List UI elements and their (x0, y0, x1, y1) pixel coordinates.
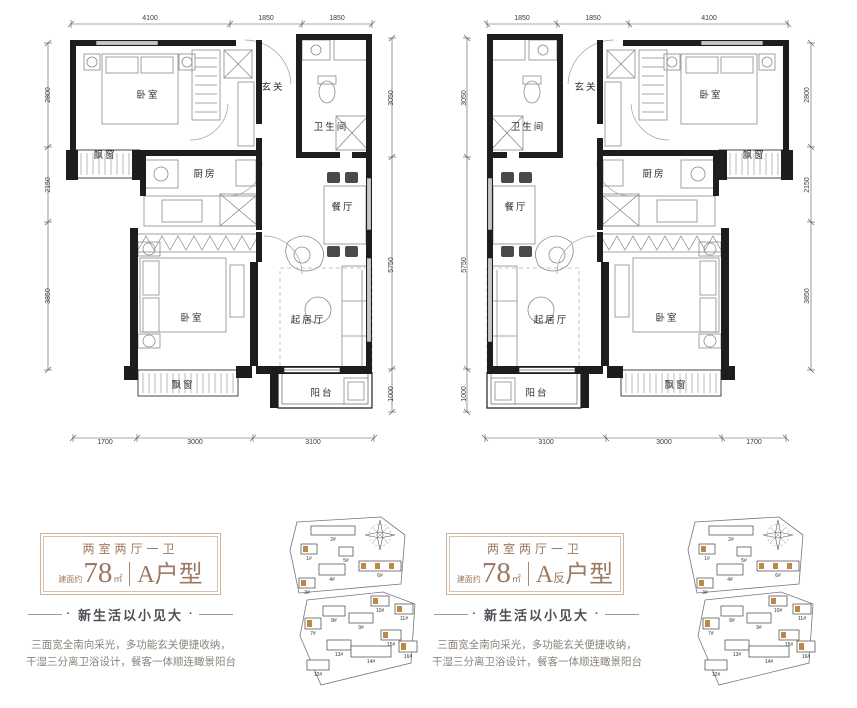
room-label: 卫生间 (511, 121, 546, 133)
highlighted-unit-marker (799, 643, 804, 650)
building-label: 1# (306, 556, 312, 562)
area-value: 78 (482, 559, 511, 588)
room-label: 卧室 (180, 312, 203, 324)
dim-label: 3050 (461, 90, 468, 106)
room-label: 玄关 (261, 81, 284, 93)
unit-area-row: 建面约 78 ㎡ A 户型 (58, 559, 202, 588)
building-label: 9# (358, 625, 364, 631)
highlighted-unit-marker (701, 546, 706, 552)
unit-card-a-frame: 两室两厅一卫 建面约 78 ㎡ A 户型 (43, 536, 218, 592)
wall (487, 34, 493, 158)
building-label: 13# (335, 652, 344, 658)
wall (70, 40, 76, 154)
room-label: 起居厅 (291, 315, 326, 326)
unit-card-a-flip: 两室两厅一卫 建面约 78 ㎡ A 反 户型 (446, 533, 624, 595)
building-label: 16# (404, 654, 413, 660)
building-label: 3# (304, 590, 310, 596)
wall (366, 34, 372, 158)
building: 7# (703, 618, 719, 637)
building: 10# (371, 596, 389, 614)
tagline-rule-right (605, 614, 639, 615)
description-a-flip: 三面宽全南向采光，多功能玄关便捷收纳， 干湿三分离卫浴设计，餐客一体顺连瞰景阳台 (421, 637, 653, 671)
unit-type-word: 户型 (565, 563, 613, 587)
room-label: 玄关 (574, 81, 597, 93)
tagline-rule-right (199, 614, 233, 615)
building-label: 4# (727, 577, 733, 583)
highlighted-unit-marker (301, 580, 306, 586)
room-label: 起居厅 (534, 315, 569, 326)
building-label: 8# (729, 618, 735, 624)
building: 4# (319, 564, 345, 583)
building: 16# (399, 641, 417, 660)
building-label: 5# (741, 558, 747, 564)
highlighted-unit-marker (699, 580, 704, 586)
tagline-a-flip: · 新生活以小见大 · (434, 605, 639, 624)
room-label: 卧室 (655, 312, 678, 324)
description-line: 干湿三分离卫浴设计，餐客一体顺连瞰景阳台 (15, 654, 247, 671)
siteplan-geometry: 2#1#5#4#6#3#10#11#8#9#7#15#13#14#16#12# (688, 517, 815, 685)
tagline-dot-right: · (595, 609, 601, 620)
wall (557, 34, 563, 158)
room-label: 卫生间 (314, 121, 349, 133)
building: 5# (737, 547, 751, 564)
dim-label: 1850 (514, 15, 530, 22)
building-label: 7# (708, 631, 714, 637)
building: 6# (359, 561, 401, 579)
building-label: 6# (377, 573, 383, 579)
building: 13# (725, 640, 749, 658)
wall (487, 34, 563, 40)
highlighted-unit-marker (773, 563, 778, 569)
building-label: 11# (798, 616, 806, 622)
dim-label: 3850 (804, 288, 811, 304)
wall (256, 138, 262, 230)
area-unit: ㎡ (113, 575, 122, 584)
dim-label: 3000 (187, 439, 203, 446)
wall (66, 150, 78, 180)
wall (140, 150, 262, 156)
highlighted-unit-marker (389, 563, 394, 569)
wall (270, 374, 278, 408)
building: 4# (717, 564, 743, 583)
building-label: 10# (376, 608, 385, 614)
room-label: 飘窗 (664, 379, 687, 391)
building: 2# (311, 526, 355, 543)
floorplan-a-flip: 卧室玄关卫生间飘窗厨房餐厅卧室起居厅飘窗阳台410018501850280021… (459, 10, 819, 450)
wall (124, 366, 138, 380)
wall (487, 152, 507, 158)
wall (581, 374, 589, 408)
divider-line (528, 562, 529, 586)
room-label: 餐厅 (504, 201, 527, 213)
dim-label: 3850 (45, 288, 52, 304)
wall (296, 34, 302, 158)
room-label: 餐厅 (331, 201, 354, 213)
building: 5# (339, 547, 353, 564)
room-label: 卧室 (699, 89, 722, 101)
page: 卧室玄关卫生间飘窗厨房餐厅卧室起居厅飘窗阳台410018501850280021… (0, 0, 857, 708)
building: 14# (749, 646, 789, 665)
building-label: 8# (331, 618, 337, 624)
room-label: 阳台 (525, 387, 548, 399)
building-label: 10# (774, 608, 783, 614)
wall (597, 150, 719, 156)
room-label: 飘窗 (742, 149, 765, 161)
building-label: 9# (756, 625, 762, 631)
siteplan-geometry: 2#1#5#4#6#3#10#11#8#9#7#15#13#14#16#12# (290, 517, 417, 685)
room-label: 厨房 (642, 168, 665, 180)
building-label: 3# (702, 590, 708, 596)
tagline-rule-left (434, 614, 468, 615)
description-a: 三面宽全南向采光，多功能玄关便捷收纳， 干湿三分离卫浴设计，餐客一体顺连瞰景阳台 (15, 637, 247, 671)
wall (597, 40, 603, 124)
building: 3# (299, 578, 315, 596)
room-label: 卧室 (136, 89, 159, 101)
building: 9# (349, 613, 373, 631)
area-prefix: 建面约 (457, 576, 481, 584)
building-label: 14# (367, 659, 376, 665)
building: 6# (757, 561, 799, 579)
wall (250, 262, 258, 366)
unit-type-word: 户型 (155, 563, 203, 587)
highlighted-unit-marker (781, 632, 786, 638)
building: 12# (307, 660, 329, 678)
plan-labels: 卧室玄关卫生间飘窗厨房餐厅卧室起居厅飘窗阳台410018501850280021… (461, 15, 811, 446)
highlighted-unit-marker (307, 620, 312, 627)
building: 2# (709, 526, 753, 543)
dim-label: 1850 (585, 15, 601, 22)
highlighted-unit-marker (373, 598, 378, 604)
dim-label: 1850 (329, 15, 345, 22)
wall (601, 262, 609, 366)
tagline-dot-right: · (189, 609, 195, 620)
plan-geometry (44, 20, 396, 442)
building-label: 11# (400, 616, 408, 622)
highlighted-unit-marker (705, 620, 710, 627)
area-value: 78 (83, 559, 112, 588)
highlighted-unit-marker (361, 563, 366, 569)
wall (130, 228, 138, 376)
unit-card-a-flip-frame: 两室两厅一卫 建面约 78 ㎡ A 反 户型 (449, 536, 621, 592)
room-label: 飘窗 (93, 149, 116, 161)
unit-config: 两室两厅一卫 (82, 540, 178, 557)
wall (296, 34, 372, 40)
building: 15# (779, 630, 799, 648)
room-label: 厨房 (193, 168, 216, 180)
wall (721, 228, 729, 376)
building-label: 12# (314, 672, 323, 678)
tagline-rule-left (28, 614, 62, 615)
highlighted-unit-marker (759, 563, 764, 569)
wall (296, 152, 340, 158)
building: 14# (351, 646, 391, 665)
wall (713, 156, 719, 196)
tagline-text: 新生活以小见大 (484, 605, 589, 624)
building-label: 7# (310, 631, 316, 637)
building: 8# (721, 606, 743, 624)
highlighted-unit-marker (375, 563, 380, 569)
divider-line (129, 562, 130, 586)
floorplan-a: 卧室玄关卫生间飘窗厨房餐厅卧室起居厅飘窗阳台410018501850280021… (40, 10, 400, 450)
dim-label: 1700 (746, 439, 762, 446)
building-label: 1# (704, 556, 710, 562)
description-line: 三面宽全南向采光，多功能玄关便捷收纳， (15, 637, 247, 654)
building-label: 2# (330, 537, 336, 543)
highlighted-unit-marker (787, 563, 792, 569)
room-label: 飘窗 (171, 379, 194, 391)
highlighted-unit-marker (401, 643, 406, 650)
building: 1# (301, 544, 317, 562)
highlighted-unit-marker (795, 606, 800, 612)
wall (352, 152, 372, 158)
plan-geometry (463, 20, 815, 442)
highlighted-unit-marker (771, 598, 776, 604)
dim-label: 3050 (388, 90, 395, 106)
building-label: 16# (802, 654, 811, 660)
building-label: 12# (712, 672, 721, 678)
dim-label: 5750 (388, 257, 395, 273)
tagline-a: · 新生活以小见大 · (28, 605, 233, 624)
dim-label: 2800 (804, 87, 811, 103)
wall (597, 232, 603, 262)
room-label: 阳台 (310, 387, 333, 399)
building-label: 5# (343, 558, 349, 564)
dim-label: 1000 (461, 386, 468, 402)
unit-type-letter: A (536, 563, 553, 587)
building: 3# (697, 578, 713, 596)
wall (519, 152, 563, 158)
dim-label: 2150 (804, 177, 811, 193)
building: 1# (699, 544, 715, 562)
building-label: 4# (329, 577, 335, 583)
dim-label: 1700 (97, 439, 113, 446)
tagline-text: 新生活以小见大 (78, 605, 183, 624)
dim-label: 1000 (388, 386, 395, 402)
dim-label: 2150 (45, 177, 52, 193)
tagline-dot-left: · (472, 609, 478, 620)
wall (256, 232, 262, 262)
wall (607, 366, 623, 378)
building: 10# (769, 596, 787, 614)
building: 11# (793, 604, 811, 622)
dim-label: 3100 (305, 439, 321, 446)
unit-type-letter: A (137, 563, 154, 587)
building-label: 14# (765, 659, 774, 665)
highlighted-unit-marker (397, 606, 402, 612)
building: 7# (305, 618, 321, 637)
building: 15# (381, 630, 401, 648)
unit-config: 两室两厅一卫 (487, 540, 583, 557)
tagline-dot-left: · (66, 609, 72, 620)
wall (140, 156, 146, 196)
unit-type-sub: 反 (553, 572, 565, 584)
area-unit: ㎡ (512, 575, 521, 584)
area-prefix: 建面约 (58, 576, 82, 584)
building: 16# (797, 641, 815, 660)
wall (597, 138, 603, 230)
wall (781, 150, 793, 180)
unit-area-row: 建面约 78 ㎡ A 反 户型 (457, 559, 613, 588)
dim-label: 2800 (45, 87, 52, 103)
description-line: 三面宽全南向采光，多功能玄关便捷收纳， (421, 637, 653, 654)
building: 12# (705, 660, 727, 678)
building: 9# (747, 613, 771, 631)
siteplan-a: 2#1#5#4#6#3#10#11#8#9#7#15#13#14#16#12# (283, 514, 435, 708)
highlighted-unit-marker (383, 632, 388, 638)
wall (721, 366, 735, 380)
wall (236, 366, 252, 378)
building-label: 13# (733, 652, 742, 658)
building: 8# (323, 606, 345, 624)
dim-label: 4100 (142, 15, 158, 22)
dim-label: 3100 (538, 439, 554, 446)
wall (783, 40, 789, 154)
unit-card-a: 两室两厅一卫 建面约 78 ㎡ A 户型 (40, 533, 221, 595)
highlighted-unit-marker (303, 546, 308, 552)
dim-label: 3000 (656, 439, 672, 446)
dim-label: 4100 (701, 15, 717, 22)
dim-label: 1850 (258, 15, 274, 22)
building: 11# (395, 604, 413, 622)
building-label: 6# (775, 573, 781, 579)
building-label: 2# (728, 537, 734, 543)
dim-label: 5750 (461, 257, 468, 273)
building: 13# (327, 640, 351, 658)
siteplan-a-flip: 2#1#5#4#6#3#10#11#8#9#7#15#13#14#16#12# (681, 514, 833, 708)
description-line: 干湿三分离卫浴设计，餐客一体顺连瞰景阳台 (421, 654, 653, 671)
